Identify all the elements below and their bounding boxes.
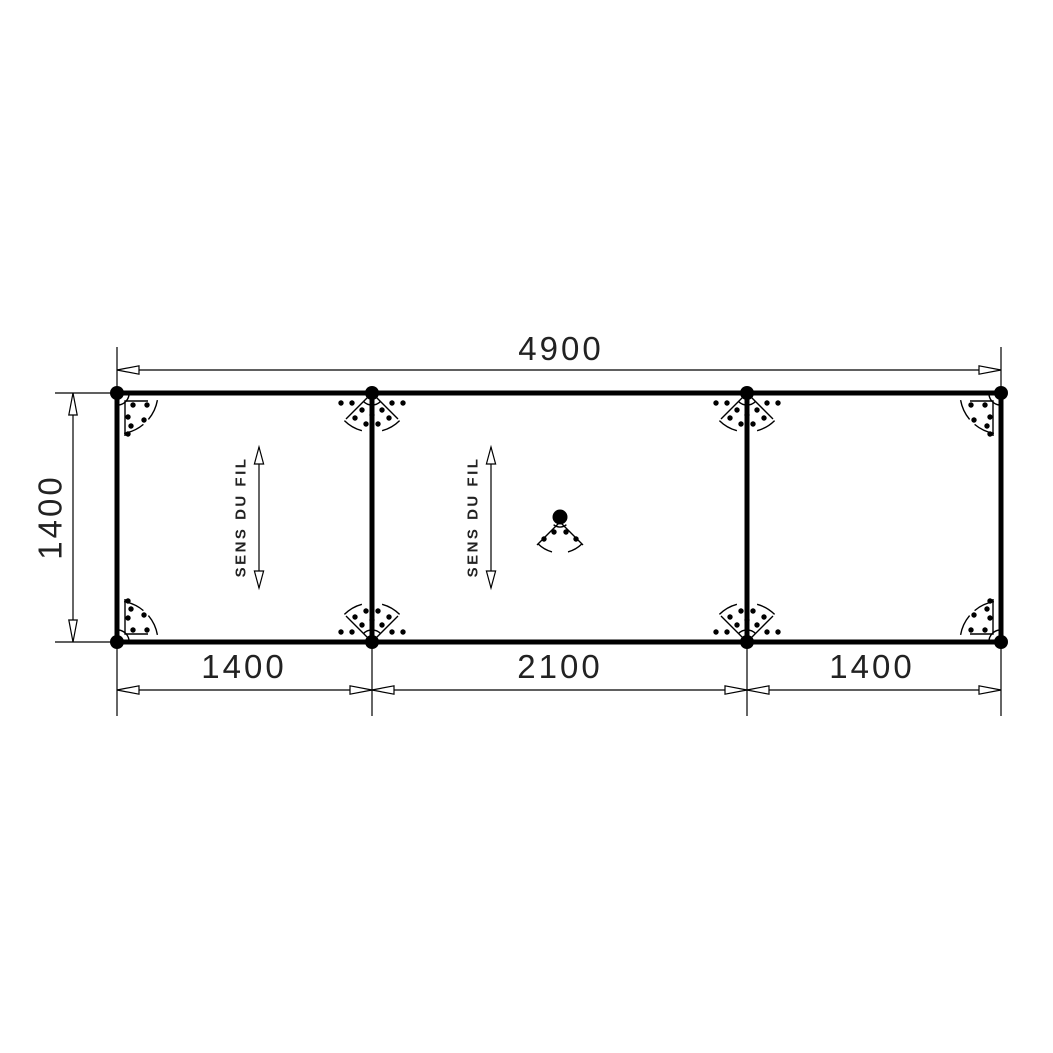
center-connector-fitting [537, 510, 583, 552]
dimension-arrow-left [117, 366, 139, 374]
dimension-arrow-top [69, 393, 77, 415]
dim-label-height: 1400 [32, 474, 69, 559]
corner-bracket-top-left [119, 395, 157, 437]
dimension-arrow [350, 686, 372, 694]
corner-bracket-bottom-left [119, 598, 157, 640]
corner-bracket-top-right [961, 395, 999, 437]
grain-arrow-down [486, 571, 495, 588]
dimension-arrow [372, 686, 394, 694]
dim-label-segment-left: 1400 [201, 648, 286, 685]
dimension-arrow-right [979, 366, 1001, 374]
technical-drawing: 4900 1400 1400 2100 1400 SENS DU FIL SEN… [0, 0, 1053, 1053]
dim-label-total-width: 4900 [518, 330, 603, 367]
grain-direction-annotation-middle: SENS DU FIL [465, 447, 496, 588]
dimension-arrow-bottom [69, 620, 77, 642]
grain-direction-label: SENS DU FIL [465, 457, 482, 578]
dim-label-segment-right: 1400 [829, 648, 914, 685]
dimension-arrow [747, 686, 769, 694]
grain-arrow-up [486, 447, 495, 464]
dim-label-segment-middle: 2100 [517, 648, 602, 685]
dimension-arrow [979, 686, 1001, 694]
dimension-arrow [117, 686, 139, 694]
grain-direction-label: SENS DU FIL [233, 457, 250, 578]
grain-direction-annotation-left: SENS DU FIL [233, 447, 264, 588]
dimension-arrow [725, 686, 747, 694]
grain-arrow-down [254, 571, 263, 588]
grain-arrow-up [254, 447, 263, 464]
corner-bracket-bottom-right [961, 598, 999, 640]
drawing-canvas: 4900 1400 1400 2100 1400 SENS DU FIL SEN… [0, 0, 1053, 1053]
